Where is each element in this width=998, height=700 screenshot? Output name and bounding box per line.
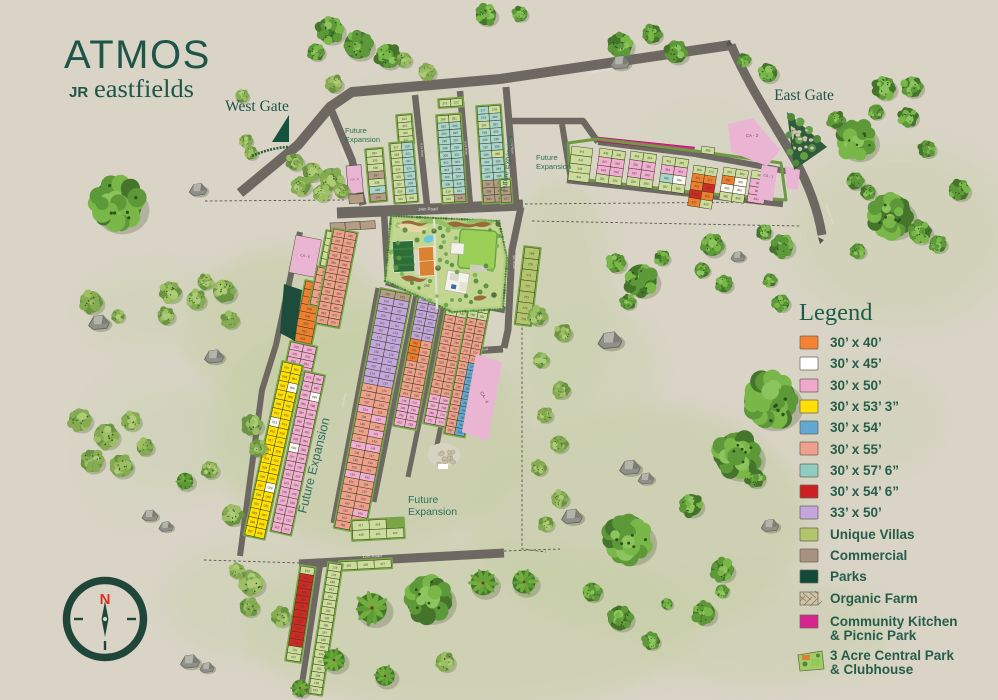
svg-text:289: 289 — [484, 152, 490, 156]
svg-text:331: 331 — [398, 197, 404, 201]
svg-text:426: 426 — [363, 563, 369, 567]
svg-text:319: 319 — [394, 152, 400, 156]
svg-text:3 Acre Central Park: 3 Acre Central Park — [830, 648, 955, 663]
svg-text:292: 292 — [495, 159, 501, 163]
svg-text:Expansion: Expansion — [408, 506, 457, 518]
svg-text:314: 314 — [402, 117, 408, 121]
svg-text:30’ x 50’: 30’ x 50’ — [830, 378, 882, 393]
svg-text:300: 300 — [443, 153, 449, 157]
svg-text:293: 293 — [485, 167, 491, 171]
svg-text:166: 166 — [303, 576, 309, 581]
svg-text:371: 371 — [442, 101, 448, 105]
svg-text:277: 277 — [480, 108, 486, 112]
svg-text:353: 353 — [634, 154, 640, 159]
svg-text:358: 358 — [645, 173, 651, 178]
svg-text:30’ x 54’ 6”: 30’ x 54’ 6” — [830, 484, 899, 499]
svg-text:307: 307 — [456, 174, 462, 178]
svg-text:174: 174 — [294, 633, 300, 638]
svg-text:356: 356 — [646, 164, 652, 169]
svg-text:385: 385 — [723, 194, 729, 199]
svg-text:192: 192 — [316, 666, 322, 671]
svg-text:337: 337 — [374, 173, 380, 177]
svg-text:Parks: Parks — [830, 569, 867, 584]
svg-text:186: 186 — [323, 623, 329, 628]
svg-text:177: 177 — [291, 655, 297, 660]
svg-text:185: 185 — [324, 616, 330, 621]
svg-text:295: 295 — [485, 175, 491, 179]
svg-text:287: 287 — [483, 145, 489, 149]
svg-text:171: 171 — [298, 612, 304, 617]
svg-text:182: 182 — [327, 594, 333, 599]
svg-text:293: 293 — [452, 124, 458, 128]
svg-text:299: 299 — [486, 189, 492, 193]
svg-text:271: 271 — [526, 273, 532, 278]
svg-text:285: 285 — [482, 138, 488, 142]
svg-text:297: 297 — [486, 182, 492, 186]
svg-text:280: 280 — [492, 115, 498, 119]
svg-text:344: 344 — [576, 175, 582, 180]
svg-text:Future: Future — [536, 153, 558, 162]
svg-text:386: 386 — [735, 196, 741, 201]
svg-text:421: 421 — [376, 532, 382, 536]
svg-text:304: 304 — [444, 168, 450, 172]
svg-text:302: 302 — [443, 160, 449, 164]
svg-text:335: 335 — [372, 158, 378, 162]
svg-text:168: 168 — [301, 590, 307, 595]
svg-text:355: 355 — [633, 162, 639, 167]
svg-text:279: 279 — [481, 116, 487, 120]
svg-text:297: 297 — [453, 138, 459, 142]
svg-text:30’ x 45’: 30’ x 45’ — [830, 356, 882, 371]
svg-text:357: 357 — [632, 171, 638, 176]
svg-text:JR: JR — [69, 84, 88, 101]
svg-text:313: 313 — [457, 196, 463, 200]
svg-text:273: 273 — [524, 295, 530, 300]
svg-text:336: 336 — [373, 166, 379, 170]
svg-text:345: 345 — [603, 151, 609, 156]
svg-text:349: 349 — [601, 168, 607, 173]
svg-text:354: 354 — [647, 156, 653, 161]
svg-text:303: 303 — [455, 160, 461, 164]
svg-text:364: 364 — [678, 169, 684, 174]
svg-text:269: 269 — [529, 251, 535, 256]
svg-text:290: 290 — [495, 152, 501, 156]
svg-text:317: 317 — [393, 145, 399, 149]
svg-text:Legend: Legend — [799, 299, 872, 326]
svg-text:33’ x 50’: 33’ x 50’ — [830, 505, 882, 520]
svg-text:384: 384 — [737, 188, 743, 193]
svg-text:173: 173 — [295, 626, 301, 631]
svg-text:296: 296 — [442, 139, 448, 143]
svg-text:286: 286 — [494, 137, 500, 141]
svg-text:311: 311 — [457, 189, 462, 193]
svg-text:189: 189 — [319, 645, 325, 650]
svg-text:Expansion: Expansion — [345, 135, 380, 144]
svg-text:West Gate: West Gate — [225, 98, 289, 115]
svg-text:12m Road: 12m Road — [362, 553, 382, 559]
svg-text:382: 382 — [738, 180, 744, 185]
svg-text:191: 191 — [317, 659, 323, 664]
svg-text:325: 325 — [396, 175, 402, 179]
svg-text:Unique Villas: Unique Villas — [830, 527, 915, 542]
svg-text:329: 329 — [397, 189, 403, 193]
svg-text:Commercial: Commercial — [830, 548, 907, 563]
svg-text:183: 183 — [326, 601, 332, 606]
svg-text:272: 272 — [525, 284, 531, 289]
svg-text:30’ x 55’: 30’ x 55’ — [830, 442, 882, 457]
svg-text:& Clubhouse: & Clubhouse — [830, 662, 914, 677]
svg-text:347: 347 — [602, 159, 608, 164]
svg-text:328: 328 — [408, 181, 414, 185]
svg-text:& Picnic Park: & Picnic Park — [830, 628, 917, 643]
svg-text:378: 378 — [703, 202, 709, 207]
svg-text:298: 298 — [442, 146, 448, 150]
svg-text:359: 359 — [630, 179, 636, 184]
svg-text:352: 352 — [612, 178, 618, 183]
svg-text:281: 281 — [481, 123, 487, 127]
svg-text:341: 341 — [579, 149, 585, 154]
svg-text:9m Road: 9m Road — [512, 255, 516, 268]
svg-text:284: 284 — [493, 130, 499, 134]
svg-text:165: 165 — [305, 568, 311, 573]
svg-text:310: 310 — [445, 189, 451, 193]
svg-text:179: 179 — [331, 573, 337, 578]
svg-text:370: 370 — [708, 170, 714, 175]
svg-text:178: 178 — [332, 565, 338, 570]
svg-text:194: 194 — [314, 681, 320, 686]
svg-text:288: 288 — [494, 144, 500, 148]
svg-text:312: 312 — [446, 197, 452, 201]
svg-text:383: 383 — [724, 186, 730, 191]
svg-text:318: 318 — [405, 144, 411, 148]
svg-text:283: 283 — [482, 130, 488, 134]
svg-text:323: 323 — [395, 167, 401, 171]
svg-text:294: 294 — [441, 132, 447, 136]
svg-text:CA - 5: CA - 5 — [350, 177, 359, 182]
svg-text:175: 175 — [293, 641, 299, 646]
svg-text:East Gate: East Gate — [774, 87, 834, 104]
svg-text:374: 374 — [706, 186, 712, 191]
svg-text:381: 381 — [725, 178, 731, 183]
svg-text:361: 361 — [666, 159, 672, 164]
svg-text:282: 282 — [493, 122, 499, 126]
svg-text:274: 274 — [522, 306, 528, 311]
svg-text:CA - 2: CA - 2 — [746, 133, 759, 138]
svg-text:343: 343 — [577, 166, 583, 171]
svg-text:308: 308 — [445, 182, 451, 186]
svg-text:324: 324 — [407, 166, 413, 170]
svg-text:376: 376 — [704, 194, 710, 199]
svg-text:339: 339 — [375, 188, 381, 192]
svg-text:316: 316 — [403, 131, 409, 135]
svg-text:306: 306 — [444, 175, 450, 179]
svg-text:167: 167 — [302, 583, 308, 588]
svg-text:301: 301 — [454, 153, 460, 157]
svg-text:362: 362 — [679, 161, 685, 166]
svg-text:Organic Farm: Organic Farm — [830, 591, 918, 606]
svg-text:180: 180 — [330, 580, 336, 585]
svg-text:369: 369 — [696, 168, 702, 173]
svg-text:366: 366 — [677, 178, 683, 183]
svg-text:Future: Future — [408, 494, 439, 506]
svg-text:eastfields: eastfields — [94, 76, 194, 103]
svg-text:270: 270 — [528, 262, 534, 267]
svg-text:371: 371 — [695, 176, 701, 181]
svg-text:422: 422 — [393, 531, 399, 535]
svg-text:373: 373 — [694, 184, 700, 189]
svg-text:195: 195 — [313, 688, 319, 693]
svg-text:372: 372 — [454, 100, 460, 104]
svg-text:299: 299 — [454, 145, 460, 149]
svg-text:30’ x 57’ 6”: 30’ x 57’ 6” — [830, 463, 899, 478]
svg-text:275: 275 — [521, 317, 527, 322]
svg-text:301: 301 — [487, 197, 493, 201]
svg-text:363: 363 — [665, 167, 671, 172]
svg-text:181: 181 — [329, 587, 335, 592]
svg-text:348: 348 — [615, 161, 621, 166]
svg-text:372: 372 — [707, 178, 713, 183]
svg-text:Future: Future — [345, 126, 367, 135]
svg-text:ATMOS: ATMOS — [64, 33, 211, 77]
svg-text:334: 334 — [372, 151, 378, 155]
svg-text:375: 375 — [693, 192, 699, 197]
svg-text:291: 291 — [452, 116, 458, 120]
svg-text:417: 417 — [358, 523, 364, 527]
svg-text:425: 425 — [346, 564, 352, 568]
svg-text:342: 342 — [578, 158, 584, 163]
svg-text:350: 350 — [614, 170, 620, 175]
svg-text:277: 277 — [504, 197, 510, 201]
svg-text:24m Road: 24m Road — [418, 206, 438, 212]
svg-text:346: 346 — [616, 153, 622, 158]
svg-text:383: 383 — [705, 148, 711, 153]
svg-text:427: 427 — [380, 562, 386, 566]
svg-text:418: 418 — [375, 522, 381, 526]
svg-text:322: 322 — [406, 159, 412, 163]
svg-text:321: 321 — [395, 160, 401, 164]
svg-text:338: 338 — [374, 180, 380, 184]
svg-text:420: 420 — [359, 533, 365, 537]
svg-text:188: 188 — [321, 638, 327, 643]
svg-text:380: 380 — [739, 172, 745, 177]
svg-text:332: 332 — [409, 196, 415, 200]
svg-text:292: 292 — [441, 124, 447, 128]
svg-text:305: 305 — [455, 167, 461, 171]
svg-text:368: 368 — [675, 186, 681, 191]
svg-text:309: 309 — [456, 181, 462, 185]
svg-text:30’ x 53’ 3”: 30’ x 53’ 3” — [830, 399, 899, 414]
svg-text:170: 170 — [299, 604, 305, 609]
svg-text:30’ x 40’: 30’ x 40’ — [830, 335, 882, 350]
svg-text:320: 320 — [405, 151, 411, 155]
svg-text:190: 190 — [318, 652, 324, 657]
svg-text:351: 351 — [599, 176, 605, 181]
svg-text:290: 290 — [424, 284, 430, 288]
svg-text:187: 187 — [322, 630, 328, 635]
svg-text:379: 379 — [727, 170, 733, 175]
svg-text:367: 367 — [662, 184, 668, 189]
svg-text:365: 365 — [664, 176, 670, 181]
svg-text:Expansion: Expansion — [536, 162, 571, 171]
svg-text:377: 377 — [691, 200, 697, 205]
svg-text:330: 330 — [408, 188, 414, 192]
svg-text:169: 169 — [300, 597, 306, 602]
svg-text:327: 327 — [397, 182, 403, 186]
svg-text:193: 193 — [315, 673, 321, 678]
svg-text:291: 291 — [484, 160, 490, 164]
svg-text:278: 278 — [492, 107, 498, 111]
svg-text:Community Kitchen: Community Kitchen — [830, 614, 958, 629]
svg-text:315: 315 — [402, 124, 408, 128]
svg-text:30’ x 54’: 30’ x 54’ — [830, 420, 882, 435]
svg-text:172: 172 — [297, 619, 303, 624]
svg-text:326: 326 — [407, 174, 413, 178]
svg-text:176: 176 — [292, 648, 298, 653]
svg-text:295: 295 — [453, 131, 459, 135]
svg-text:184: 184 — [325, 609, 331, 614]
svg-text:360: 360 — [643, 181, 649, 186]
svg-text:340: 340 — [375, 195, 381, 199]
svg-text:290: 290 — [440, 117, 446, 121]
